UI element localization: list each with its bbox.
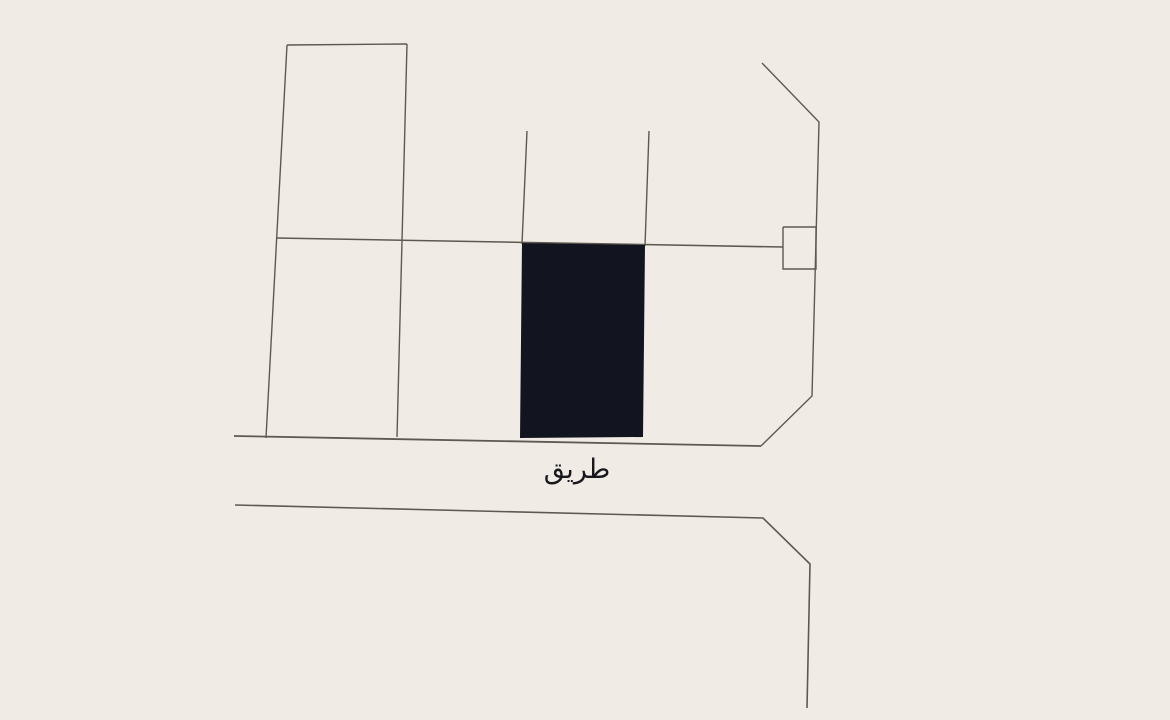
road-label: طريق <box>544 454 610 485</box>
map-viewport: طريق <box>0 0 1170 720</box>
parcel-map-canvas[interactable]: طريق <box>0 0 1170 720</box>
parcel-top-edge <box>287 44 407 45</box>
highlighted-parcel[interactable] <box>520 243 645 438</box>
